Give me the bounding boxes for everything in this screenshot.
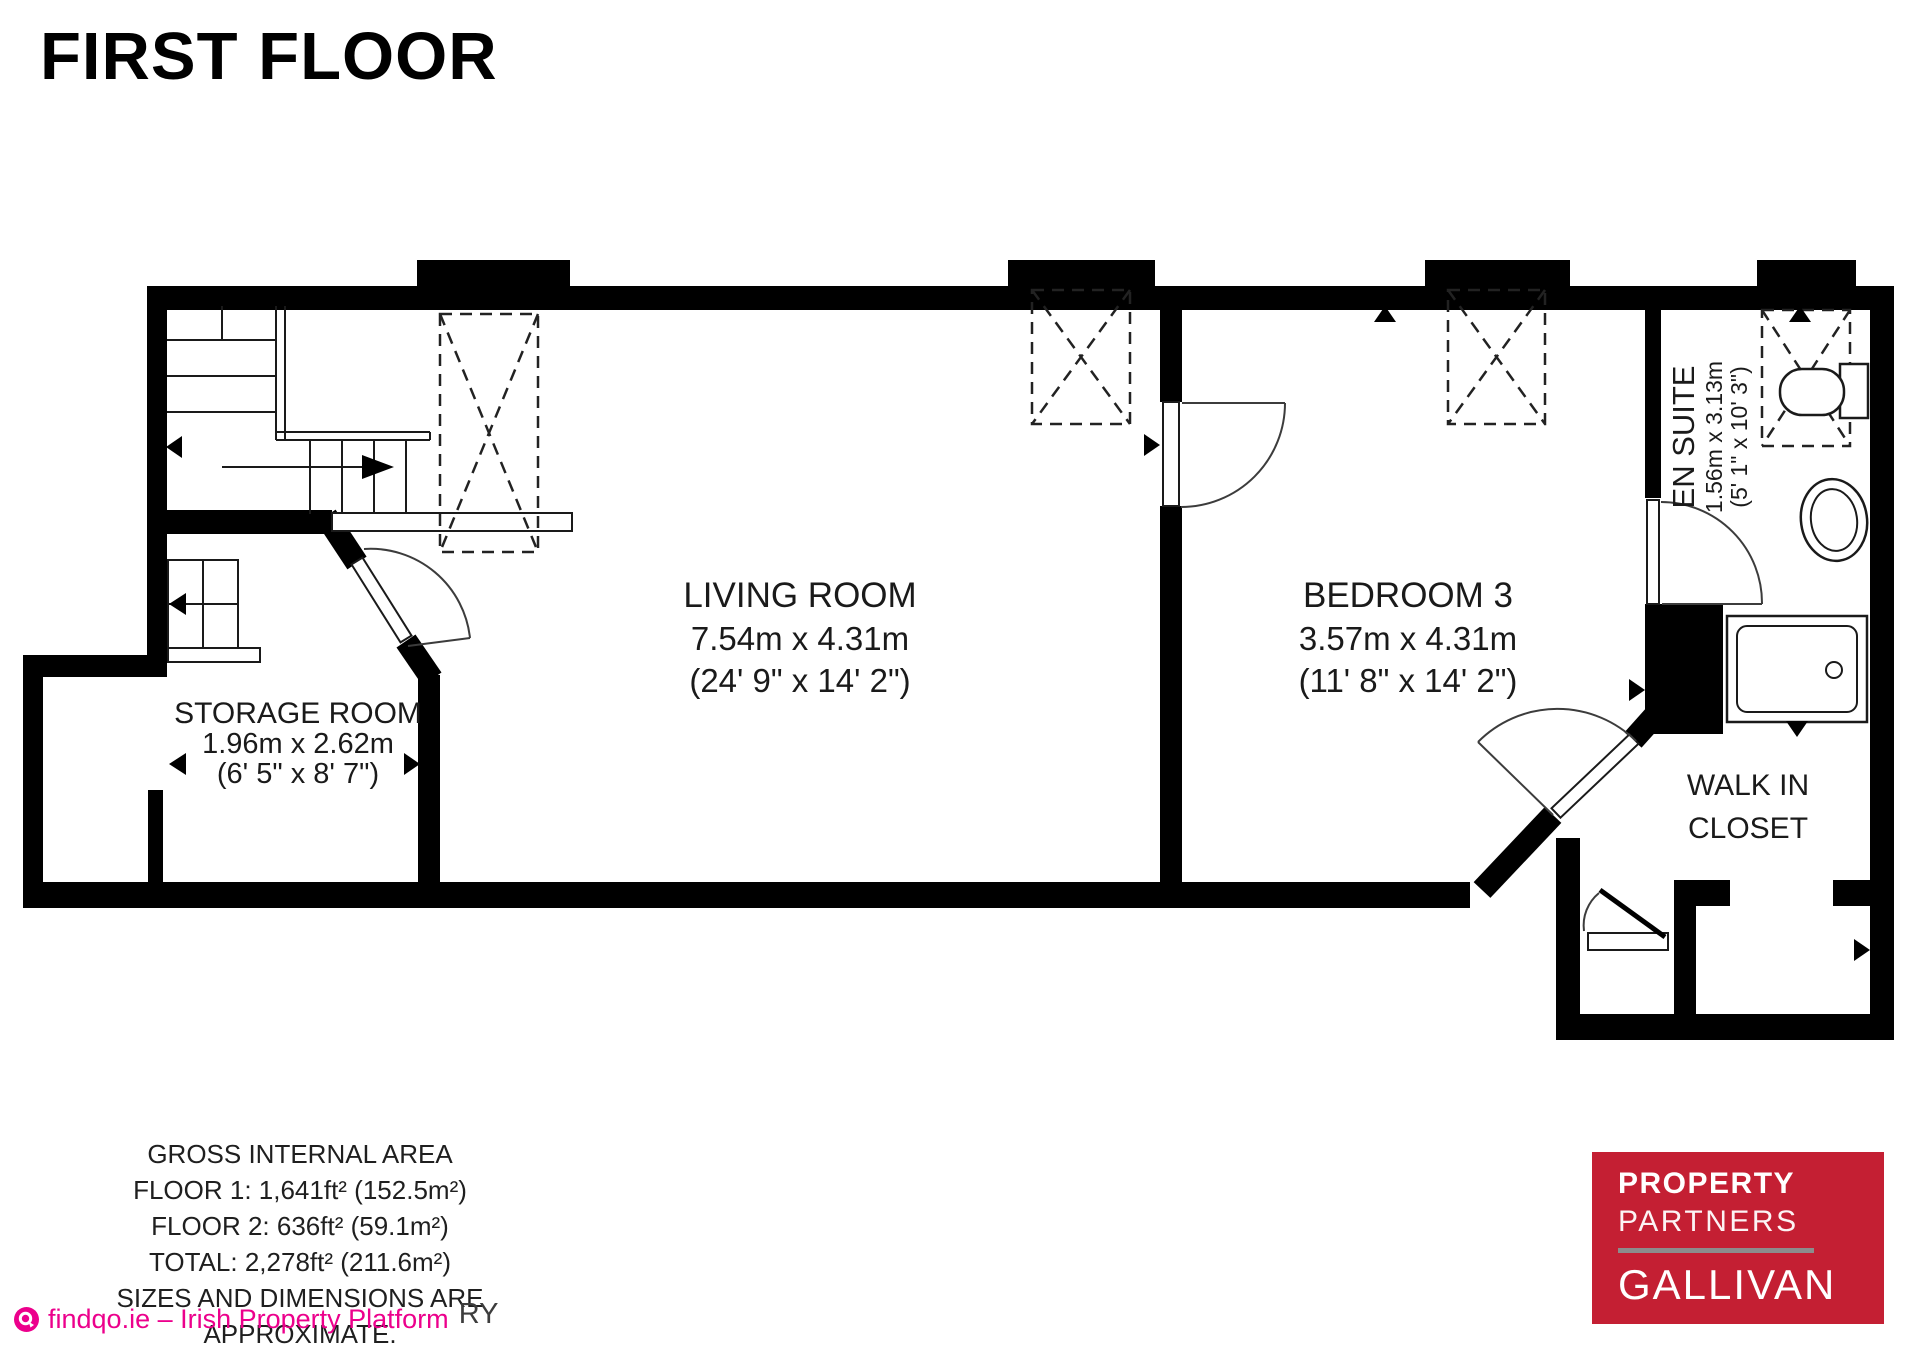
floorplan-page: FIRST FLOOR: [0, 0, 1920, 1362]
annex-hatch-door: [1584, 890, 1668, 950]
room-dim-imperial: (24' 9" x 14' 2"): [689, 662, 910, 699]
room-dim-metric: 1.96m x 2.62m: [202, 728, 394, 760]
room-dim-metric: 3.57m x 4.31m: [1299, 620, 1517, 657]
walk-in-closet-door: [1478, 709, 1639, 818]
area-summary-line: TOTAL: 2,278ft² (211.6m²): [20, 1244, 580, 1280]
sink: [1796, 475, 1873, 565]
agency-logo-line3: GALLIVAN: [1618, 1261, 1884, 1309]
roof-window-bay-3: [1425, 260, 1570, 288]
room-dim-metric: 7.54m x 4.31m: [691, 620, 909, 657]
bedroom-door: [1163, 402, 1285, 507]
platform-link: findqo.ie – Irish Property Platform: [48, 1304, 449, 1335]
room-dim-imperial: (5' 1" x 10' 3"): [1726, 366, 1752, 507]
room-label-en-suite: EN SUITE 1.56m x 3.13m (5' 1" x 10' 3"): [1666, 361, 1752, 513]
room-dim-metric: 1.56m x 3.13m: [1701, 361, 1727, 513]
room-name: BEDROOM 3: [1303, 576, 1513, 615]
room-name-line1: WALK IN: [1687, 769, 1809, 802]
room-name: EN SUITE: [1666, 366, 1701, 509]
area-summary-line: FLOOR 1: 1,641ft² (152.5m²): [20, 1172, 580, 1208]
roof-window-bay-4: [1757, 260, 1856, 288]
room-name: LIVING ROOM: [683, 576, 916, 615]
roof-window-2: [1032, 290, 1130, 424]
room-dim-imperial: (11' 8" x 14' 2"): [1299, 662, 1518, 699]
findqo-logo-icon: [14, 1307, 39, 1332]
window-sill: [168, 648, 260, 662]
watermark-fragment: RY: [459, 1298, 499, 1331]
room-name: STORAGE ROOM: [174, 697, 422, 730]
roof-window-bay-1: [417, 260, 570, 288]
agency-logo-divider: [1618, 1248, 1814, 1253]
room-label-bedroom-3: BEDROOM 3 3.57m x 4.31m (11' 8" x 14' 2"…: [1299, 576, 1518, 699]
shower: [1727, 616, 1867, 722]
closet-diagonal-wall: [1482, 815, 1553, 890]
room-label-living-room: LIVING ROOM 7.54m x 4.31m (24' 9" x 14' …: [683, 576, 916, 699]
walls: [23, 260, 1894, 1040]
platform-attribution: findqo.ie – Irish Property Platform RY: [14, 1303, 498, 1336]
storage-room-door: [352, 549, 471, 646]
toilet: [1780, 364, 1868, 418]
agency-logo-line1: PROPERTY: [1618, 1167, 1884, 1201]
agency-logo-line2: PARTNERS: [1618, 1205, 1884, 1239]
area-summary-line: FLOOR 2: 636ft² (59.1m²): [20, 1208, 580, 1244]
room-dim-imperial: (6' 5" x 8' 7"): [217, 758, 379, 790]
room-label-storage-room: STORAGE ROOM 1.96m x 2.62m (6' 5" x 8' 7…: [174, 697, 422, 790]
roof-window-3: [1448, 290, 1545, 424]
roof-window-bay-2: [1008, 260, 1155, 288]
room-name-line2: CLOSET: [1688, 812, 1808, 845]
area-summary-line: GROSS INTERNAL AREA: [20, 1136, 580, 1172]
ensuite-door: [1647, 500, 1762, 604]
agency-logo: PROPERTY PARTNERS GALLIVAN: [1592, 1152, 1884, 1324]
room-label-walk-in-closet: WALK IN CLOSET: [1687, 769, 1809, 845]
